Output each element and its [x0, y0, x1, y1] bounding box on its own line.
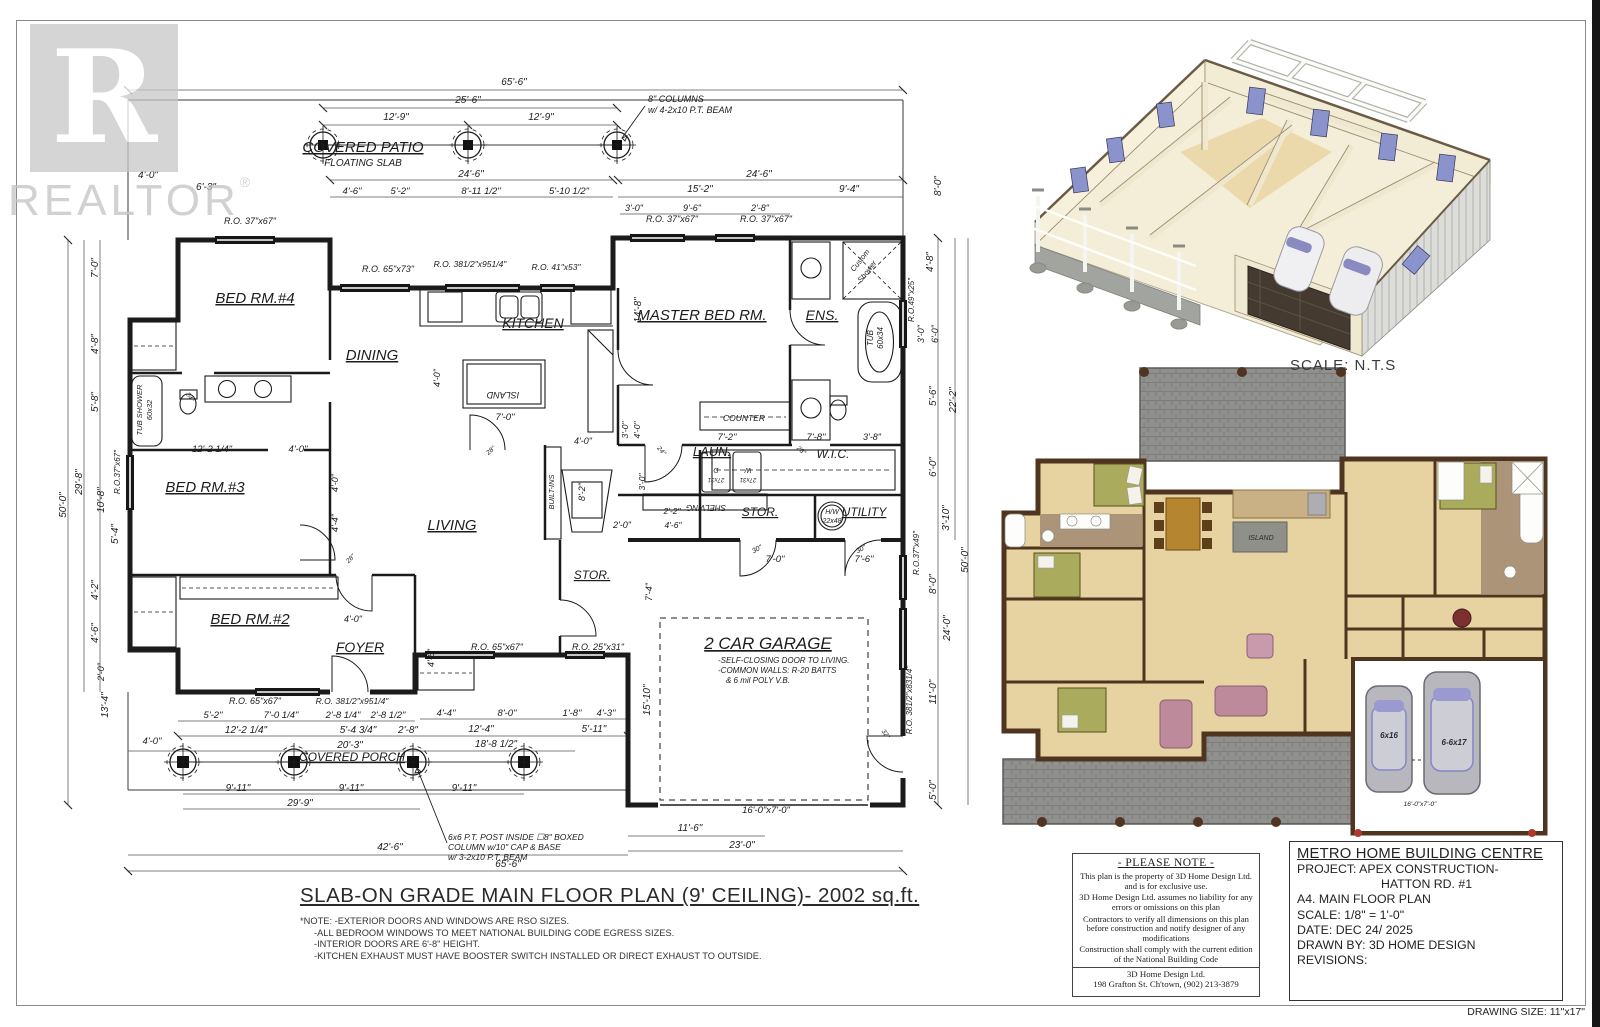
plan-label: 7'-0": [496, 412, 516, 423]
plan-label: 2'-0": [612, 520, 632, 530]
plan-notes: *NOTE: -EXTERIOR DOORS AND WINDOWS ARE R…: [300, 916, 860, 962]
plan-label: 8" COLUMNS: [648, 94, 704, 104]
plan-label: 15'-10": [642, 684, 653, 715]
plan-label: 4'-0": [632, 421, 642, 439]
plan-label: 9'-11": [226, 783, 251, 794]
sheet-name: A4. MAIN FLOOR PLAN: [1297, 892, 1556, 907]
plan-label: FLOATING SLAB: [324, 158, 402, 169]
plan-label: 7'-2": [718, 432, 738, 443]
plan-label: COLUMN w/10" CAP & BASE: [448, 842, 561, 852]
please-note-title: - PLEASE NOTE -: [1073, 857, 1259, 869]
plan-label: 4'-0": [330, 473, 340, 492]
plan-label: 42'-6": [377, 842, 403, 853]
plan-label: 16'-0"x7'-0": [1404, 801, 1437, 808]
please-note-paragraph: This plan is the property of 3D Home Des…: [1076, 872, 1256, 891]
plan-label: 3'-0": [637, 473, 647, 491]
plan-label: 4'-3": [597, 708, 617, 719]
plan-label: SHELVING: [686, 503, 726, 512]
plan-label: 18'-8 1/2": [475, 739, 518, 750]
plan-label: MASTER BED RM.: [637, 307, 766, 324]
plan-label: 29'-9": [286, 798, 313, 809]
plan-label: 24'-6": [457, 169, 484, 180]
plan-label: R.O.37"x67": [113, 449, 122, 494]
plan-label: 25'-6": [454, 95, 481, 106]
plan-label: 2'-8 1/2": [370, 710, 406, 721]
plan-label: 7'-0": [766, 554, 786, 565]
design-firm: 3D Home Design Ltd.: [1073, 969, 1259, 979]
plan-label: BUILT-INS: [547, 474, 556, 509]
plan-label: R.O. 65"x67": [229, 696, 282, 706]
plan-label: 14'-8": [633, 297, 644, 323]
plan-label: 16'-0"x7'-0": [742, 805, 790, 816]
plan-label: -SELF-CLOSING DOOR TO LIVING.: [718, 656, 849, 665]
plan-label: 1'-8": [563, 708, 583, 719]
scan-edge-bar: [1592, 0, 1600, 1027]
plan-label: LIVING: [427, 517, 477, 534]
scale-note: SCALE: N.T.S: [1290, 357, 1510, 374]
main-title-block: SLAB-ON GRADE MAIN FLOOR PLAN (9' CEILIN…: [300, 884, 860, 962]
revisions: REVISIONS:: [1297, 953, 1556, 968]
plan-label: 12'-9": [528, 112, 554, 123]
plan-label: 8'-0": [498, 708, 518, 719]
plan-label: 50'-0": [960, 547, 971, 573]
plan-label: R.O. 37"x67": [224, 216, 277, 226]
plan-label: 2 CAR GARAGE: [703, 634, 832, 653]
drawing-sheet: COVERED PATIOFLOATING SLABBED RM.#4DININ…: [0, 0, 1600, 1027]
plan-label: KITCHEN: [502, 315, 564, 331]
plan-label: 6x16: [1380, 731, 1398, 740]
plan-label: 3'-0": [625, 203, 644, 213]
plan-label: R.O. 381/2"x951/4": [434, 259, 508, 269]
plan-label: COVERED PORCH: [299, 750, 405, 764]
plan-label: 60x34: [876, 327, 885, 349]
plan-label: 6'-3": [196, 182, 216, 193]
plan-label: ISLAND: [1248, 535, 1273, 542]
plan-label: 50'-0": [58, 492, 69, 518]
plan-label: 27x31: [708, 476, 725, 482]
drawing-size-note: DRAWING SIZE: 11"x17": [1330, 1006, 1585, 1018]
plan-label: 5'-8": [90, 392, 101, 412]
plan-label: 27x31: [740, 476, 757, 482]
please-note-body: This plan is the property of 3D Home Des…: [1073, 869, 1259, 965]
plan-label: 3'-0": [916, 324, 926, 343]
plan-label: 2'-8 1/4": [325, 710, 361, 721]
plan-label: 2'-2": [663, 506, 682, 516]
please-note-box: - PLEASE NOTE - This plan is the propert…: [1072, 853, 1260, 997]
sheet-date: DATE: DEC 24/ 2025: [1297, 923, 1556, 938]
plan-label: & 6 mil POLY V.B.: [726, 676, 790, 685]
plan-label: 4'-8": [90, 334, 101, 354]
plan-label: R.O. 65"x67": [471, 642, 524, 652]
plan-label: 8'-0": [933, 176, 944, 196]
plan-label: 4'-0": [344, 614, 363, 624]
plan-label: 65'-6": [501, 77, 527, 88]
plan-label: R.O. 381/2"x951/4": [316, 696, 390, 706]
plan-label: FOYER: [336, 639, 384, 655]
plan-label: 6x6 P.T. POST INSIDE ☐8" BOXED: [448, 832, 584, 842]
plan-label: 20'-3": [336, 740, 363, 751]
plan-note-line: -INTERIOR DOORS ARE 6'-8" HEIGHT.: [314, 939, 860, 951]
plan-label: 10'-8": [96, 487, 107, 513]
sheet-scale: SCALE: 1/8" = 1'-0": [1297, 908, 1556, 923]
plan-label: 5'-4": [110, 524, 121, 544]
plan-label: H/W: [825, 509, 840, 516]
plan-label: 4'-0": [143, 736, 163, 747]
plan-label: 9'-11": [452, 783, 477, 794]
plan-label: 4'-6": [665, 520, 683, 530]
plan-label: STOR.: [574, 568, 610, 582]
plan-label: 6'-0": [930, 324, 940, 343]
plan-label: 11'-0": [928, 679, 939, 704]
plan-label: 4'-4": [437, 708, 457, 719]
plan-label: 12'-2 1/4": [225, 725, 268, 736]
plan-label: BED RM.#4: [215, 290, 294, 307]
project-line2: HATTON RD. #1: [1297, 877, 1556, 892]
plan-label: 9'-6": [683, 203, 702, 213]
plan-label: R.O. 381/2"x831/4": [905, 665, 914, 735]
plan-label: 7'-4": [644, 582, 654, 601]
plan-label: 22x48: [821, 518, 841, 525]
plan-label: 5'-4 3/4": [340, 725, 377, 736]
plan-note-line: -ALL BEDROOM WINDOWS TO MEET NATIONAL BU…: [314, 928, 860, 940]
plan-label: 24'-6": [745, 169, 772, 180]
plan-label: 8'-11 1/2": [461, 186, 501, 197]
plan-label: TUB SHOWER: [135, 384, 144, 435]
plan-label: 4'-0": [289, 444, 309, 455]
plan-label: ENS.: [806, 307, 839, 323]
plan-label: w/ 4-2x10 P.T. BEAM: [648, 105, 733, 115]
plan-label: TUB: [866, 329, 875, 346]
plan-label: 65'-6": [495, 859, 521, 870]
plan-label: R.O.37"x49": [912, 530, 921, 575]
plan-label: BED RM.#3: [165, 479, 245, 496]
plan-label: 4'-0": [574, 436, 593, 446]
plan-label: 5'-10 1/2": [549, 186, 590, 197]
plan-label: 4'-0": [432, 368, 442, 387]
plan-label: R.O. 37"x67": [646, 214, 699, 224]
plan-label: UTILITY: [842, 505, 888, 519]
plan-label: 12'-4": [468, 724, 494, 735]
please-note-paragraph: Contractors to verify all dimensions on …: [1076, 915, 1256, 944]
plan-label: 5'-2": [391, 186, 411, 197]
plan-label: 5'-11": [582, 724, 607, 735]
plan-label: 2'-0": [96, 662, 106, 682]
plan-label: 4'-6": [90, 623, 101, 643]
plan-label: 4'-8": [925, 252, 936, 272]
plan-label: 3'-8": [863, 432, 882, 442]
please-note-paragraph: Construction shall comply with the curre…: [1076, 945, 1256, 964]
plan-label: 3'-10": [941, 505, 952, 531]
plan-label: 12'-9": [383, 112, 409, 123]
plan-title: SLAB-ON GRADE MAIN FLOOR PLAN (9' CEILIN…: [300, 884, 860, 908]
plan-label: 7'-8": [807, 432, 827, 443]
plan-label: 2'-8": [397, 725, 418, 736]
plan-label: 23'-0": [728, 840, 755, 851]
plan-label: 9'-4": [839, 184, 859, 195]
design-firm-address: 198 Grafton St. Ch'town, (902) 213-3879: [1073, 979, 1259, 989]
plan-label: COUNTER: [723, 413, 765, 423]
plan-label: STOR.: [742, 505, 778, 519]
plan-label: 4'-2": [90, 580, 101, 600]
plan-label: -COMMON WALLS: R-20 BATTS: [718, 666, 837, 675]
company-name: METRO HOME BUILDING CENTRE: [1297, 846, 1556, 862]
plan-label: R.O.49"x25": [907, 277, 916, 322]
plan-label: 60x32: [145, 399, 154, 420]
plan-label: 7'-6": [855, 554, 875, 565]
plan-label: 7'-0 1/4": [264, 710, 299, 721]
render-3d: [1030, 42, 1490, 356]
plan-label: R.O. 41"x53": [531, 262, 581, 272]
plan-label: LAUN.: [693, 444, 731, 459]
plan-label: R.O. 25"x31": [572, 642, 625, 652]
plan-label: 6'-0": [928, 457, 939, 477]
plan-label: 3'-0": [620, 421, 630, 439]
please-note-footer: 3D Home Design Ltd. 198 Grafton St. Ch't…: [1073, 967, 1259, 989]
plan-label: 4'-4": [330, 513, 340, 532]
plan-label: 5'-2": [204, 710, 224, 721]
plan-label: 8'-0": [928, 574, 939, 594]
plan-label: BED RM.#2: [210, 611, 290, 628]
plan-label: 5'-0": [928, 780, 939, 800]
plan-label: 24'-0": [942, 615, 953, 642]
plan-label: W.I.C.: [817, 447, 850, 461]
colored-patio: [1140, 368, 1345, 461]
plan-label: 13'-4": [100, 692, 111, 718]
plan-label: 9'-11": [339, 783, 364, 794]
plan-label: 15'-2": [687, 184, 713, 195]
plan-note-line: *NOTE: -EXTERIOR DOORS AND WINDOWS ARE R…: [300, 916, 860, 928]
plan-label: 7'-0": [90, 258, 101, 278]
plan-label: 2'-8": [750, 203, 770, 213]
plan-label: 22'-2": [948, 387, 959, 414]
plan-label: DINING: [346, 347, 399, 364]
colored-floor-plan: [1003, 367, 1545, 837]
plan-label: 11'-6": [678, 823, 703, 834]
title-block: METRO HOME BUILDING CENTRE PROJECT: APEX…: [1289, 841, 1563, 1001]
plan-note-line: -KITCHEN EXHAUST MUST HAVE BOOSTER SWITC…: [314, 951, 860, 963]
plan-label: 5'-6": [928, 386, 939, 406]
plan-label: 4'-6": [426, 648, 436, 667]
plan-label: R.O. 37"x67": [740, 214, 793, 224]
plan-label: ISLAND: [486, 390, 519, 400]
plan-label: 8'-2": [577, 482, 587, 501]
drawn-by: DRAWN BY: 3D HOME DESIGN: [1297, 938, 1556, 953]
plan-label: COVERED PATIO: [302, 139, 423, 156]
please-note-paragraph: 3D Home Design Ltd. assumes no liability…: [1076, 893, 1256, 912]
plan-label: 4'-0": [138, 170, 158, 181]
plan-label: 6-6x17: [1442, 738, 1467, 747]
plan-label: 29'-8": [74, 469, 85, 496]
plan-label: 4'-6": [343, 186, 363, 197]
plan-label: D: [713, 466, 718, 473]
plan-label: R.O. 65"x73": [362, 264, 415, 274]
project-line1: PROJECT: APEX CONSTRUCTION-: [1297, 862, 1556, 877]
plan-label: 12'-2 1/4": [192, 444, 233, 455]
